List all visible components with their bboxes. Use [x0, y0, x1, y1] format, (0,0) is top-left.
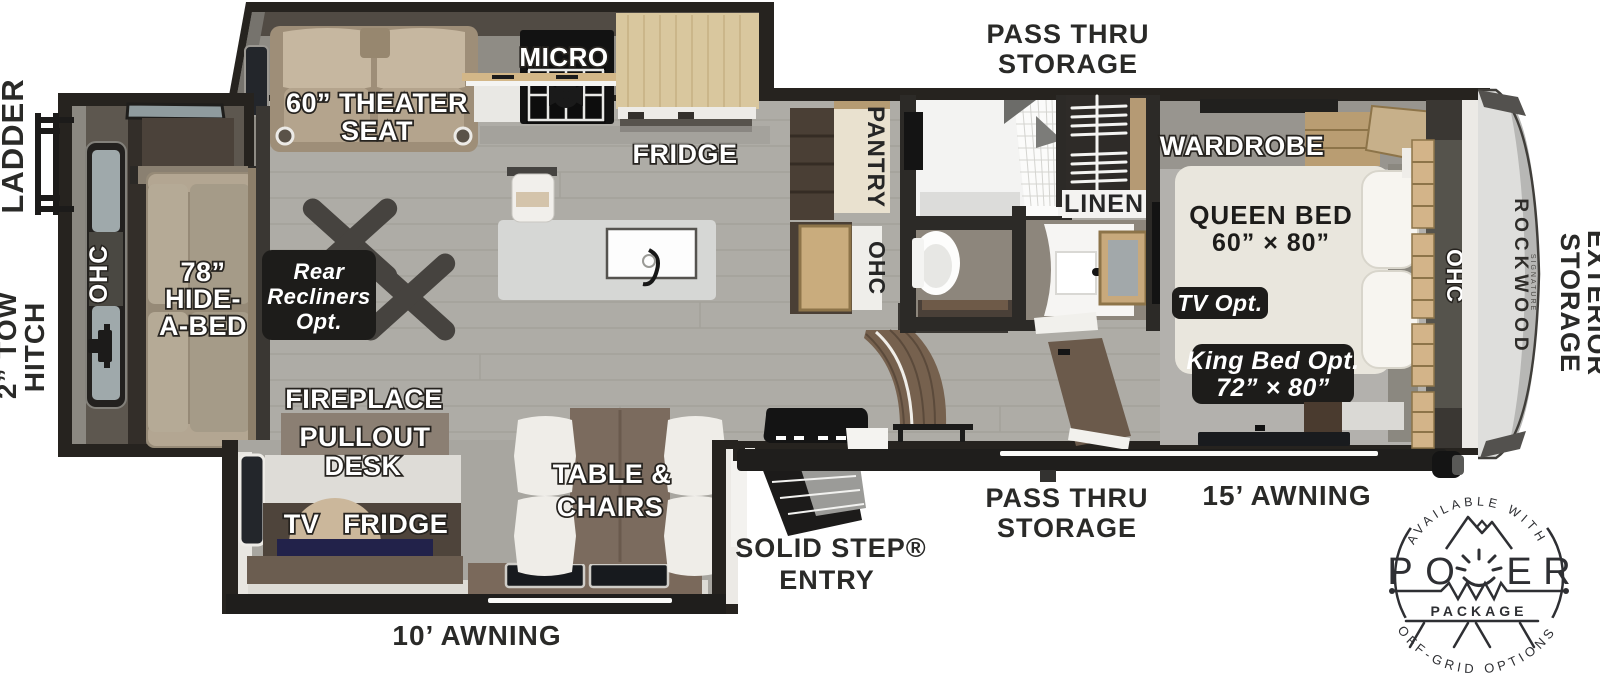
- svg-text:PASS THRU: PASS THRU: [986, 19, 1149, 49]
- svg-text:FIREPLACE: FIREPLACE: [285, 384, 443, 414]
- svg-text:LADDER: LADDER: [0, 78, 30, 213]
- svg-text:SOLID STEP®: SOLID STEP®: [735, 533, 926, 563]
- svg-text:Rear: Rear: [294, 259, 346, 284]
- svg-text:MICRO: MICRO: [519, 42, 608, 72]
- svg-text:PANTRY: PANTRY: [862, 106, 889, 208]
- svg-text:ROCKWOOD: ROCKWOOD: [1510, 198, 1531, 355]
- svg-text:DESK: DESK: [324, 451, 401, 481]
- svg-text:10’ AWNING: 10’ AWNING: [392, 620, 561, 651]
- svg-text:PACKAGE: PACKAGE: [1431, 603, 1528, 619]
- svg-text:SIGNATURE: SIGNATURE: [1529, 254, 1536, 312]
- svg-text:QUEEN BED: QUEEN BED: [1189, 200, 1353, 230]
- svg-text:STORAGE: STORAGE: [1555, 233, 1585, 373]
- svg-text:P: P: [1387, 551, 1412, 593]
- svg-text:TV Opt.: TV Opt.: [1177, 290, 1262, 316]
- svg-text:A-BED: A-BED: [159, 311, 247, 341]
- svg-text:King Bed Opt.: King Bed Opt.: [1186, 347, 1359, 375]
- svg-text:60” × 80”: 60” × 80”: [1212, 229, 1330, 257]
- svg-text:LINEN: LINEN: [1064, 190, 1144, 218]
- svg-text:STORAGE: STORAGE: [997, 513, 1137, 543]
- svg-text:TV FRIDGE: TV FRIDGE: [284, 509, 449, 539]
- svg-text:PULLOUT: PULLOUT: [300, 422, 431, 452]
- svg-text:CHAIRS: CHAIRS: [557, 492, 664, 522]
- svg-text:R: R: [1543, 551, 1570, 593]
- svg-text:78”: 78”: [180, 257, 225, 287]
- svg-text:Recliners: Recliners: [267, 284, 371, 309]
- svg-text:PASS THRU: PASS THRU: [985, 483, 1148, 513]
- svg-text:HIDE-: HIDE-: [165, 284, 241, 314]
- svg-text:TABLE &: TABLE &: [553, 459, 672, 489]
- svg-text:72” × 80”: 72” × 80”: [1216, 374, 1330, 402]
- svg-text:Opt.: Opt.: [296, 309, 342, 334]
- svg-text:WARDROBE: WARDROBE: [1160, 131, 1325, 161]
- svg-text:HITCH: HITCH: [19, 302, 50, 393]
- svg-text:15’ AWNING: 15’ AWNING: [1202, 480, 1371, 511]
- svg-text:60” THEATER: 60” THEATER: [286, 88, 468, 118]
- svg-text:STORAGE: STORAGE: [998, 49, 1138, 79]
- svg-text:ENTRY: ENTRY: [779, 565, 875, 595]
- svg-text:E: E: [1506, 551, 1531, 593]
- svg-text:SEAT: SEAT: [341, 116, 413, 146]
- svg-text:OHC: OHC: [864, 241, 890, 295]
- svg-text:OHC: OHC: [85, 245, 113, 304]
